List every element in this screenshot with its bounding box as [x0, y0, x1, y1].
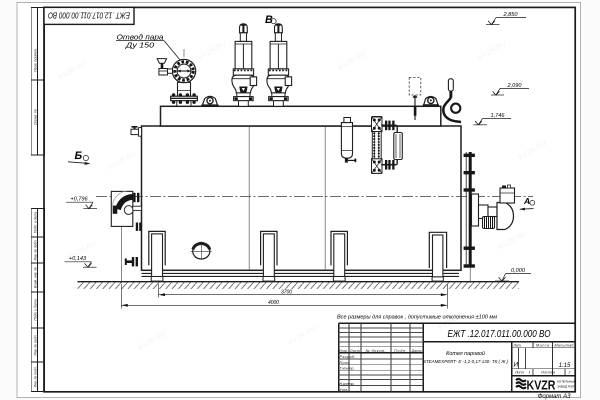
svg-text:Лист: Лист: [349, 349, 360, 353]
svg-text:И: И: [514, 362, 519, 369]
svg-text:Перв. примен.: Перв. примен.: [34, 48, 38, 72]
svg-text:2: 2: [568, 371, 571, 375]
svg-text:KVZR: KVZR: [527, 377, 556, 392]
svg-text:Лист: Лист: [514, 371, 524, 375]
svg-text:4000: 4000: [268, 300, 279, 306]
svg-text:Пров.: Пров.: [340, 361, 351, 365]
svg-text:ЕЖТ .12.017.011.00.000 ВО: ЕЖТ .12.017.011.00.000 ВО: [448, 328, 551, 340]
svg-text:+0,143: +0,143: [69, 256, 87, 262]
svg-text:3700: 3700: [281, 289, 292, 295]
svg-text:Подп. и дата: Подп. и дата: [33, 299, 37, 320]
svg-text:Подп. и дата: Подп. и дата: [33, 212, 37, 233]
svg-text:1:15: 1:15: [559, 363, 571, 369]
svg-text:Утв.: Утв.: [340, 388, 349, 392]
svg-text:Ду 150: Ду 150: [125, 40, 155, 49]
svg-text:2,850: 2,850: [503, 12, 519, 18]
svg-text:Б: Б: [75, 150, 83, 162]
svg-text:№ докум.: № докум.: [366, 349, 386, 353]
svg-text:Т.контр.: Т.контр.: [340, 367, 355, 371]
svg-text:КОТЕЛЬНЫЙ: КОТЕЛЬНЫЙ: [557, 380, 577, 384]
svg-text:Инв. № подл.: Инв. № подл.: [33, 334, 37, 355]
svg-text:Масштаб: Масштаб: [555, 343, 575, 347]
svg-text:+0,796: +0,796: [70, 197, 88, 203]
svg-text:Разраб.: Разраб.: [340, 355, 356, 359]
svg-text:Формат А3: Формат А3: [538, 394, 571, 400]
svg-text:Инв. № дубл.: Инв. № дубл.: [33, 240, 37, 261]
svg-text:Инв. № подл.: Инв. № подл.: [33, 366, 37, 387]
svg-text:ЕЖТ .12.017.011.00.000 ВО: ЕЖТ .12.017.011.00.000 ВО: [48, 10, 130, 19]
svg-text:1: 1: [529, 371, 531, 375]
svg-text:1,746: 1,746: [491, 113, 506, 119]
svg-text:Подп.: Подп.: [394, 349, 407, 353]
svg-text:ЗАВОД РЭП: ЗАВОД РЭП: [557, 385, 575, 389]
svg-text:Взам. инв. №: Взам. инв. №: [33, 267, 37, 288]
svg-text:А: А: [523, 196, 530, 206]
svg-text:STEAMEXPERT- Е -1,2-0,17-130-: STEAMEXPERT- Е -1,2-0,17-130- ТК ( Ж ): [423, 359, 508, 364]
svg-text:В: В: [265, 14, 273, 26]
svg-text:Справ. №: Справ. №: [34, 109, 38, 125]
svg-text:Котел паровой: Котел паровой: [446, 350, 485, 357]
svg-text:Лит.: Лит.: [513, 343, 522, 347]
svg-text:Все размеры для справок , допу: Все размеры для справок , допустимые отк…: [337, 314, 497, 320]
svg-text:Н.контр.: Н.контр.: [340, 382, 355, 386]
svg-text:Масса: Масса: [536, 343, 549, 347]
svg-text:2,090: 2,090: [507, 83, 523, 89]
svg-text:Листов: Листов: [540, 371, 555, 375]
svg-text:Изм.: Изм.: [339, 349, 348, 353]
svg-text:Дата: Дата: [411, 349, 422, 353]
